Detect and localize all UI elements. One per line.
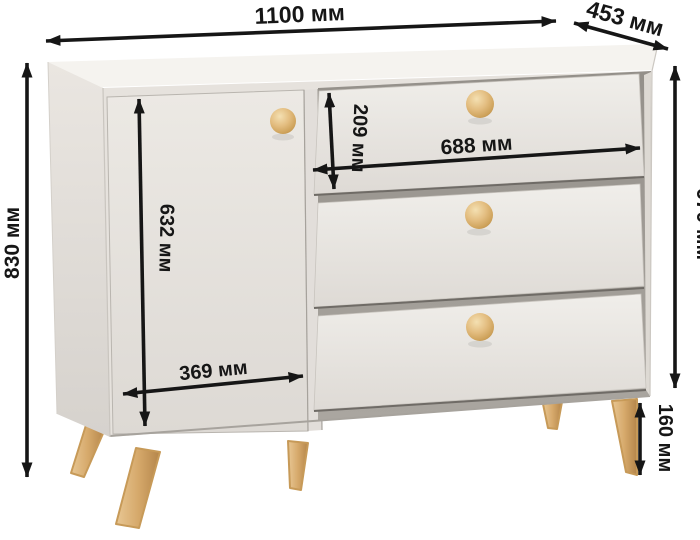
overall-width-dimension: 1100 мм	[46, 0, 556, 41]
commode-dimension-drawing: 1100 мм 453 мм 830 мм 670 мм 209 мм 688 …	[0, 0, 700, 540]
drawer-1-knob-shadow	[468, 118, 492, 125]
overall-height-label: 830 мм	[1, 207, 24, 279]
drawer-2-knob	[465, 201, 493, 229]
body-height-dimension: 670 мм	[675, 66, 700, 388]
depth-label: 453 мм	[584, 0, 667, 41]
overall-width-label: 1100 мм	[254, 0, 345, 29]
back-left-leg	[71, 425, 105, 477]
top-drawer-height-label: 209 мм	[347, 104, 371, 173]
back-right-leg	[543, 402, 562, 429]
drawer-3-knob	[466, 313, 494, 341]
front-left-leg	[116, 448, 160, 528]
leg-height-dimension: 160 мм	[640, 403, 676, 475]
depth-dimension: 453 мм	[574, 0, 668, 49]
overall-height-dimension: 830 мм	[1, 63, 27, 477]
leg-height-label: 160 мм	[654, 404, 676, 473]
door-height-label: 632 мм	[154, 204, 177, 273]
door-knob	[270, 108, 296, 134]
drawer-1-knob	[466, 90, 494, 118]
drawer-2-knob-shadow	[467, 229, 491, 236]
door-knob-shadow	[272, 134, 294, 141]
front-right-leg	[612, 399, 637, 475]
left-side-panel	[48, 62, 110, 437]
body-height-label: 670 мм	[692, 188, 700, 260]
middle-leg	[288, 441, 308, 490]
drawer-3-knob-shadow	[468, 341, 492, 348]
dimension-diagram: 1100 мм 453 мм 830 мм 670 мм 209 мм 688 …	[0, 0, 700, 540]
